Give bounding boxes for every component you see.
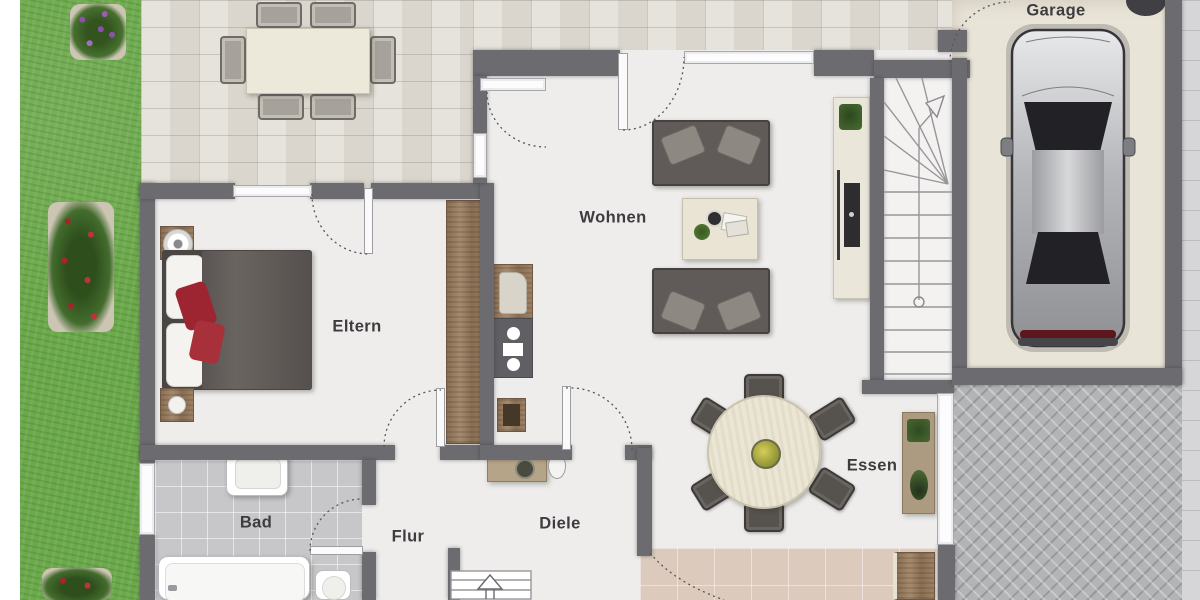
door-arc [487, 92, 546, 147]
room-label-garage: Garage [1026, 2, 1085, 21]
door-arc [950, 2, 1010, 62]
door-arc [650, 553, 724, 600]
side-mirror [1123, 138, 1135, 156]
car [1001, 24, 1135, 352]
door-arc [310, 499, 362, 551]
side-mirror [1001, 138, 1013, 156]
door-arc [623, 57, 684, 130]
taillight [1020, 330, 1116, 339]
door-swing-arcs [310, 2, 1010, 600]
room-label-essen: Essen [847, 457, 898, 476]
main-staircase [884, 78, 952, 374]
plan-overlay [0, 0, 1200, 600]
room-label-flur: Flur [392, 528, 425, 547]
windshield [1024, 102, 1112, 152]
room-label-bad: Bad [240, 514, 272, 533]
rear-bumper [1018, 338, 1118, 346]
room-label-wohnen: Wohnen [579, 209, 646, 228]
basement-stairs [451, 571, 531, 599]
car-roof [1032, 150, 1104, 234]
stair-direction-arrow [926, 96, 944, 117]
rear-window [1026, 232, 1110, 284]
door-arc [384, 390, 441, 447]
door-arc [312, 194, 369, 254]
floor-plan: Garage Wohnen Eltern Essen Bad Flur Diel… [0, 0, 1200, 600]
room-label-eltern: Eltern [332, 318, 381, 337]
room-label-diele: Diele [539, 515, 580, 534]
door-arc [566, 388, 632, 450]
